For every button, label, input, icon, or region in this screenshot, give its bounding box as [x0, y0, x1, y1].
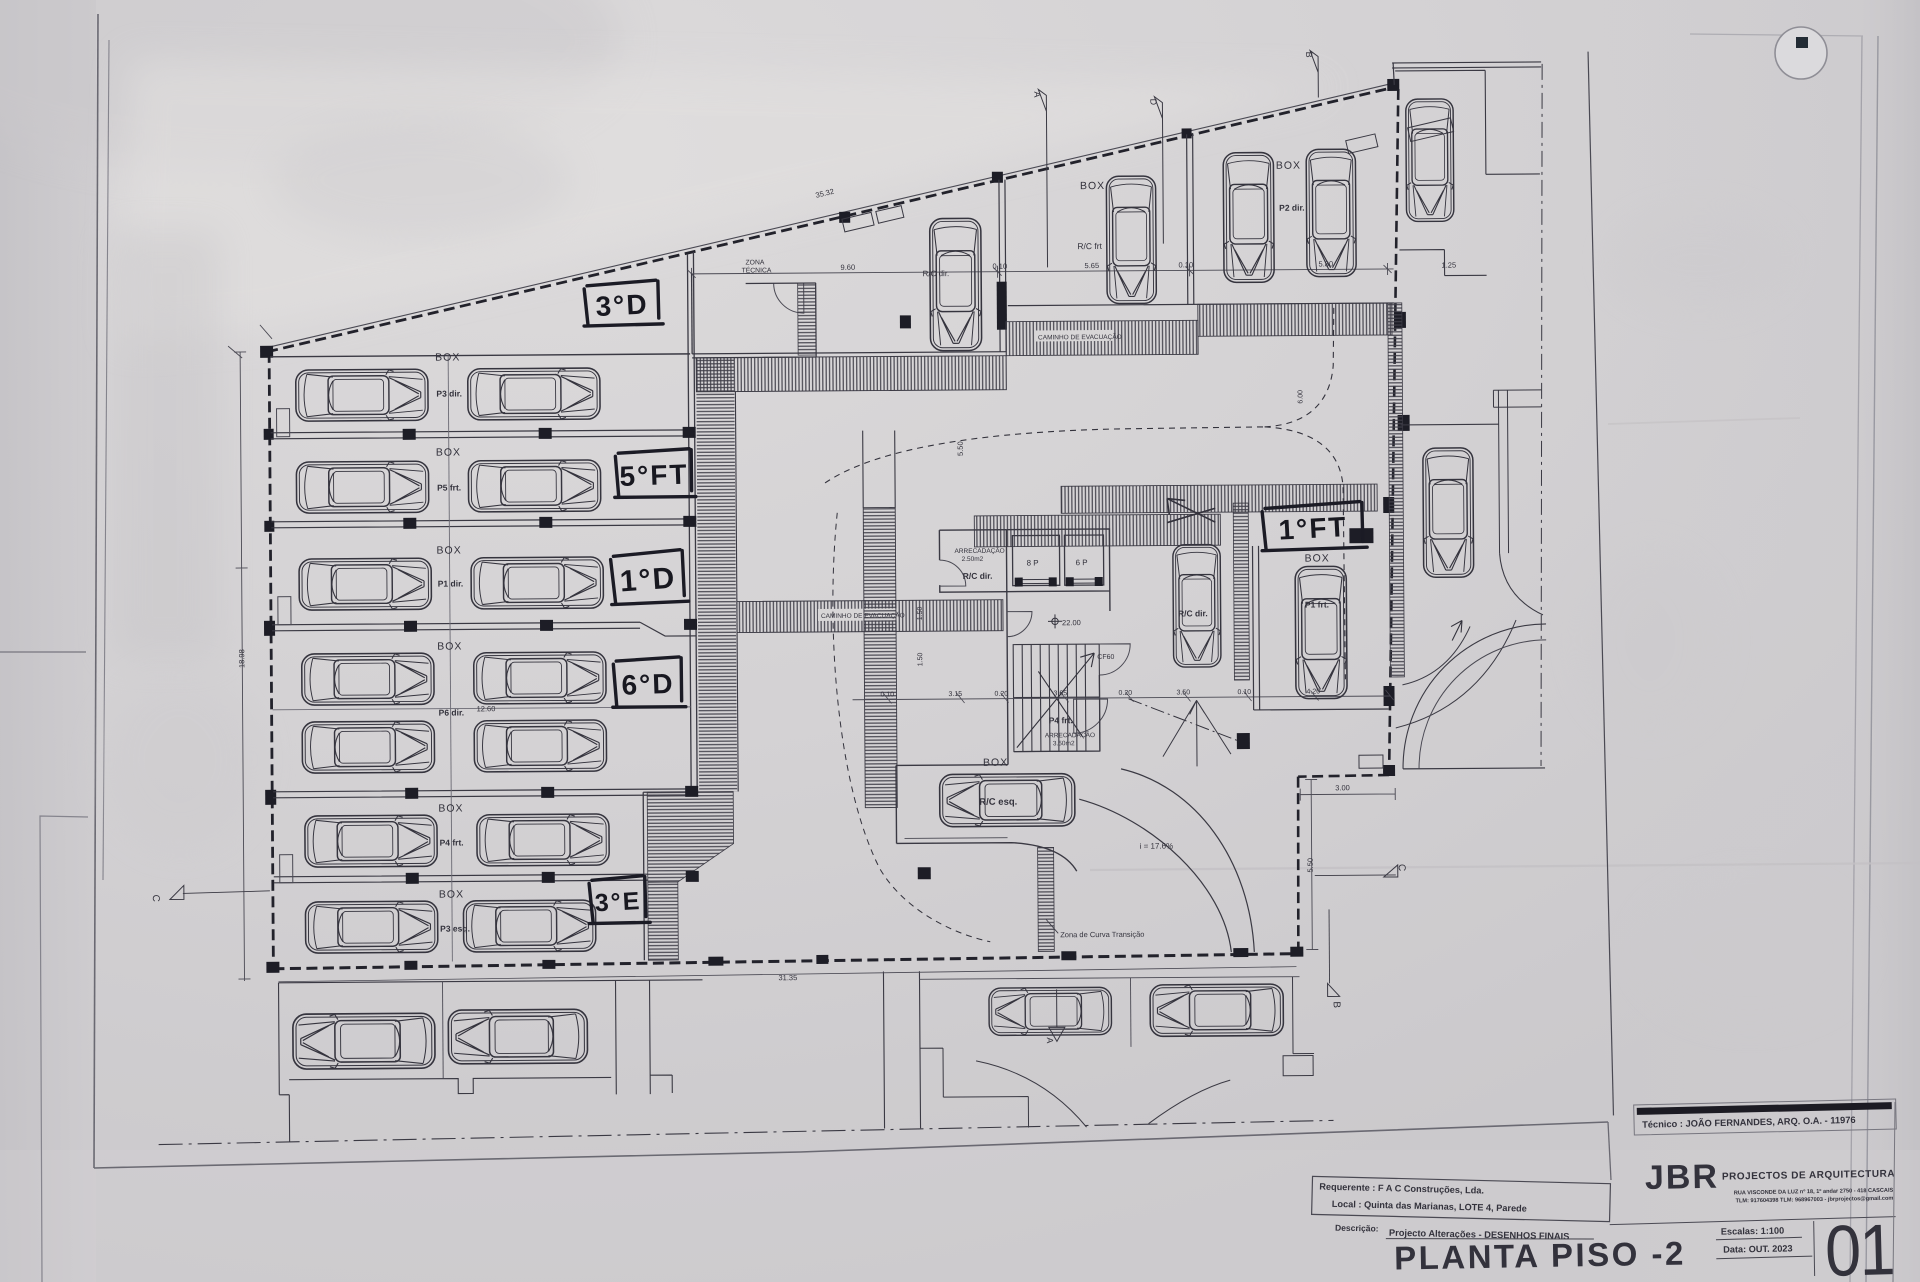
svg-text:P4 frt.: P4 frt.: [440, 837, 464, 847]
svg-text:BOX: BOX: [1305, 552, 1330, 564]
svg-text:C: C: [150, 895, 161, 902]
svg-text:C: C: [1396, 864, 1407, 871]
svg-text:01: 01: [1824, 1209, 1895, 1282]
svg-text:R/C frt: R/C frt: [1077, 241, 1102, 251]
svg-text:3.50m2: 3.50m2: [1053, 740, 1075, 747]
svg-text:1°D: 1°D: [619, 562, 678, 599]
svg-text:3.15: 3.15: [948, 691, 962, 698]
svg-text:3.00: 3.00: [1335, 783, 1350, 792]
svg-text:P3 dir.: P3 dir.: [436, 388, 462, 398]
svg-text:2.50m2: 2.50m2: [962, 556, 984, 563]
svg-text:A: A: [1032, 91, 1042, 97]
svg-text:5.50: 5.50: [1306, 858, 1315, 873]
svg-text:12.60: 12.60: [477, 704, 496, 713]
svg-text:TÉCNICA: TÉCNICA: [742, 265, 772, 274]
svg-text:P3 esq.: P3 esq.: [440, 923, 470, 933]
svg-text:6.00: 6.00: [1297, 390, 1304, 404]
svg-text:1.50: 1.50: [917, 607, 924, 621]
svg-text:B: B: [1304, 52, 1314, 58]
svg-text:3.65: 3.65: [1053, 690, 1067, 697]
svg-text:P6 dir.: P6 dir.: [439, 707, 465, 717]
svg-text:BOX: BOX: [983, 757, 1008, 769]
svg-text:Zona de Curva Transição: Zona de Curva Transição: [1060, 930, 1144, 940]
svg-text:ARRECADAÇÃO: ARRECADAÇÃO: [954, 546, 1004, 555]
svg-text:BOX: BOX: [435, 351, 460, 363]
svg-text:ARRECADAÇÃO: ARRECADAÇÃO: [1045, 730, 1095, 739]
svg-text:R/C esq.: R/C esq.: [979, 797, 1017, 808]
svg-text:Escalas: 1:100: Escalas: 1:100: [1721, 1226, 1785, 1237]
svg-text:0.10: 0.10: [1237, 689, 1251, 696]
svg-text:Descrição:: Descrição:: [1335, 1223, 1379, 1234]
svg-text:P2 dir.: P2 dir.: [1279, 203, 1305, 213]
svg-text:Data: OUT. 2023: Data: OUT. 2023: [1723, 1243, 1793, 1254]
svg-text:R/C dir.: R/C dir.: [1178, 608, 1208, 618]
svg-text:6 P: 6 P: [1076, 558, 1088, 567]
svg-text:i = 17.6%: i = 17.6%: [1140, 842, 1174, 851]
svg-text:18.98: 18.98: [237, 649, 246, 668]
svg-text:5.80: 5.80: [1318, 259, 1333, 268]
svg-text:BOX: BOX: [439, 888, 464, 900]
svg-text:P4 frt.: P4 frt.: [1049, 715, 1073, 725]
svg-text:6°D: 6°D: [621, 668, 675, 701]
svg-text:P1 frt.: P1 frt.: [1305, 599, 1329, 609]
svg-text:JBR: JBR: [1645, 1158, 1720, 1197]
svg-text:B: B: [1331, 1001, 1342, 1008]
svg-text:1.25: 1.25: [1442, 261, 1457, 270]
svg-text:P1 dir.: P1 dir.: [438, 578, 464, 588]
svg-text:5.50: 5.50: [956, 441, 965, 456]
svg-text:BOX: BOX: [437, 640, 462, 652]
svg-text:PLANTA PISO -2: PLANTA PISO -2: [1394, 1234, 1686, 1276]
svg-text:3°D: 3°D: [595, 288, 650, 322]
svg-text:22.00: 22.00: [1062, 618, 1081, 627]
svg-text:1.50: 1.50: [917, 653, 924, 667]
svg-text:0.10: 0.10: [992, 262, 1007, 271]
svg-text:BOX: BOX: [1276, 160, 1301, 172]
svg-text:CF60: CF60: [1097, 654, 1114, 661]
svg-text:R/C dir.: R/C dir.: [923, 269, 950, 278]
svg-text:1°FT: 1°FT: [1278, 511, 1349, 546]
svg-text:5°FT: 5°FT: [619, 459, 689, 492]
svg-text:BOX: BOX: [438, 802, 463, 814]
svg-text:9.60: 9.60: [841, 263, 856, 272]
svg-text:0.20: 0.20: [1118, 690, 1132, 697]
svg-text:0.10: 0.10: [880, 691, 894, 698]
svg-text:8 P: 8 P: [1027, 558, 1039, 567]
svg-text:BOX: BOX: [436, 544, 461, 556]
svg-text:0.20: 0.20: [994, 691, 1008, 698]
svg-text:0.10: 0.10: [1178, 260, 1193, 269]
svg-text:3°E: 3°E: [594, 887, 642, 917]
svg-text:3.50: 3.50: [1176, 689, 1190, 696]
svg-text:BOX: BOX: [436, 446, 461, 458]
svg-text:5.65: 5.65: [1084, 261, 1099, 270]
svg-text:A: A: [1045, 1037, 1055, 1043]
svg-text:ZONA: ZONA: [745, 259, 764, 266]
svg-text:31.35: 31.35: [778, 973, 797, 982]
svg-text:BOX: BOX: [1080, 180, 1105, 192]
svg-text:R/C dir.: R/C dir.: [963, 571, 993, 581]
svg-text:D: D: [1148, 99, 1158, 106]
svg-text:P5 frt.: P5 frt.: [437, 482, 461, 492]
